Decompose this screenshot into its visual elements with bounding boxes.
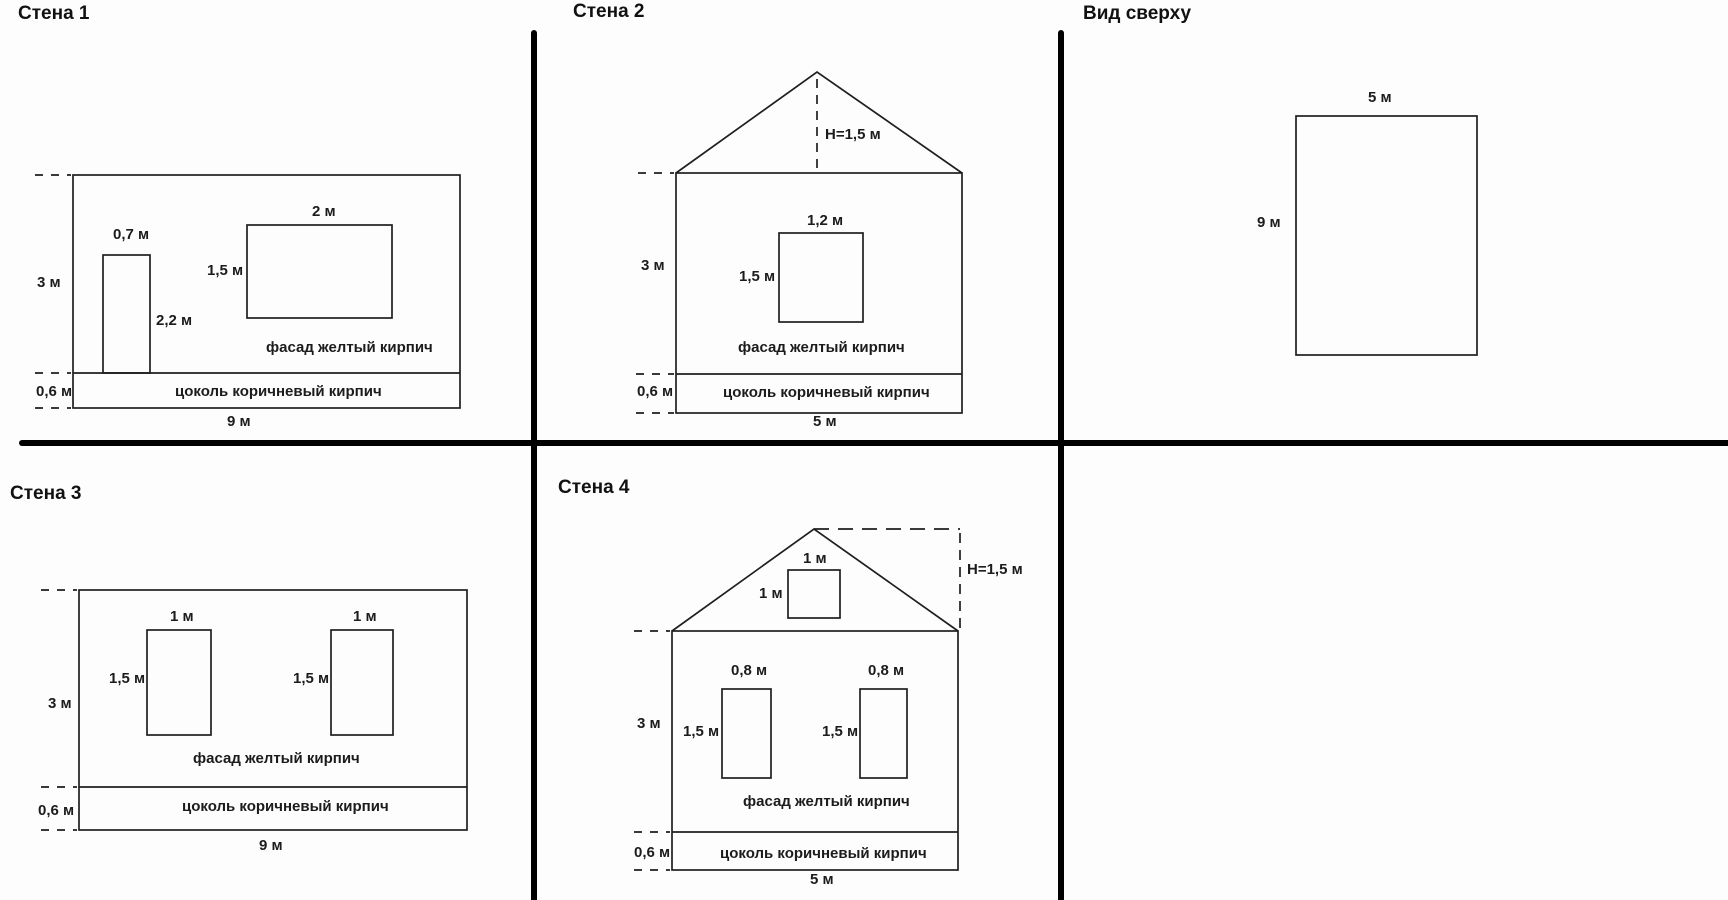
wall4-title: Стена 4	[558, 478, 629, 497]
top-view-title: Вид сверху	[1083, 4, 1191, 23]
wall4-window-left-width-label: 0,8 м	[731, 663, 767, 678]
wall2-roof	[676, 72, 962, 173]
top-view-depth-label: 9 м	[1257, 215, 1281, 230]
wall4-roof	[672, 529, 958, 631]
wall3-title: Стена 3	[10, 484, 81, 503]
wall4-attic-window-width-label: 1 м	[803, 551, 827, 566]
wall4-facade-label: фасад желтый кирпич	[743, 794, 910, 809]
wall1-height-label: 3 м	[37, 275, 61, 290]
wall1-plinth-label: цоколь коричневый кирпич	[175, 384, 382, 399]
wall2-plinth-height-label: 0,6 м	[637, 384, 673, 399]
wall1-window-height-label: 1,5 м	[207, 263, 243, 278]
wall2-window-height-label: 1,5 м	[739, 269, 775, 284]
wall3-window-right	[331, 630, 393, 735]
wall4-roof-height-label: H=1,5 м	[967, 562, 1023, 577]
wall4-attic-window-height-label: 1 м	[759, 586, 783, 601]
wall4-height-label: 3 м	[637, 716, 661, 731]
wall2-outline	[676, 173, 962, 413]
top-view-outline	[1296, 116, 1477, 355]
wall3-height-label: 3 м	[48, 696, 72, 711]
wall4-plinth-height-label: 0,6 м	[634, 845, 670, 860]
wall2-plinth-label: цоколь коричневый кирпич	[723, 385, 930, 400]
wall1-plinth-height-label: 0,6 м	[36, 384, 72, 399]
wall1-door	[103, 255, 150, 373]
wall3-window-left-height-label: 1,5 м	[109, 671, 145, 686]
wall4-plinth-label: цоколь коричневый кирпич	[720, 846, 927, 861]
wall2-window-width-label: 1,2 м	[807, 213, 843, 228]
wall2-window	[779, 233, 863, 322]
wall3-window-left	[147, 630, 211, 735]
wall4-window-right	[860, 689, 907, 778]
wall4-attic-window	[788, 570, 840, 618]
wall2-height-label: 3 м	[641, 258, 665, 273]
blueprint-canvas: Стена 1 0,7 м 2 м 1,5 м 2,2 м 3 м 0,6 м …	[0, 0, 1728, 900]
wall3-window-left-width-label: 1 м	[170, 609, 194, 624]
wall1-window	[247, 225, 392, 318]
wall4-outline	[672, 631, 958, 870]
wall3-plinth-label: цоколь коричневый кирпич	[182, 799, 389, 814]
wall3-plinth-height-label: 0,6 м	[38, 803, 74, 818]
wall2-facade-label: фасад желтый кирпич	[738, 340, 905, 355]
wall4-window-right-height-label: 1,5 м	[822, 724, 858, 739]
top-view-width-label: 5 м	[1368, 90, 1392, 105]
wall3-outline	[79, 590, 467, 830]
wall3-width-label: 9 м	[259, 838, 283, 853]
wall4-window-right-width-label: 0,8 м	[868, 663, 904, 678]
wall1-door-height-label: 2,2 м	[156, 313, 192, 328]
wall1-window-width-label: 2 м	[312, 204, 336, 219]
wall3-facade-label: фасад желтый кирпич	[193, 751, 360, 766]
wall3-window-right-width-label: 1 м	[353, 609, 377, 624]
wall1-width-label: 9 м	[227, 414, 251, 429]
wall4-window-left	[722, 689, 771, 778]
wall2-title: Стена 2	[573, 2, 644, 21]
wall2-width-label: 5 м	[813, 414, 837, 429]
wall4-width-label: 5 м	[810, 872, 834, 887]
wall2-roof-height-label: H=1,5 м	[825, 127, 881, 142]
wall3-window-right-height-label: 1,5 м	[293, 671, 329, 686]
wall1-title: Стена 1	[18, 4, 89, 23]
wall4-window-left-height-label: 1,5 м	[683, 724, 719, 739]
wall1-door-width-label: 0,7 м	[113, 227, 149, 242]
wall1-facade-label: фасад желтый кирпич	[266, 340, 433, 355]
